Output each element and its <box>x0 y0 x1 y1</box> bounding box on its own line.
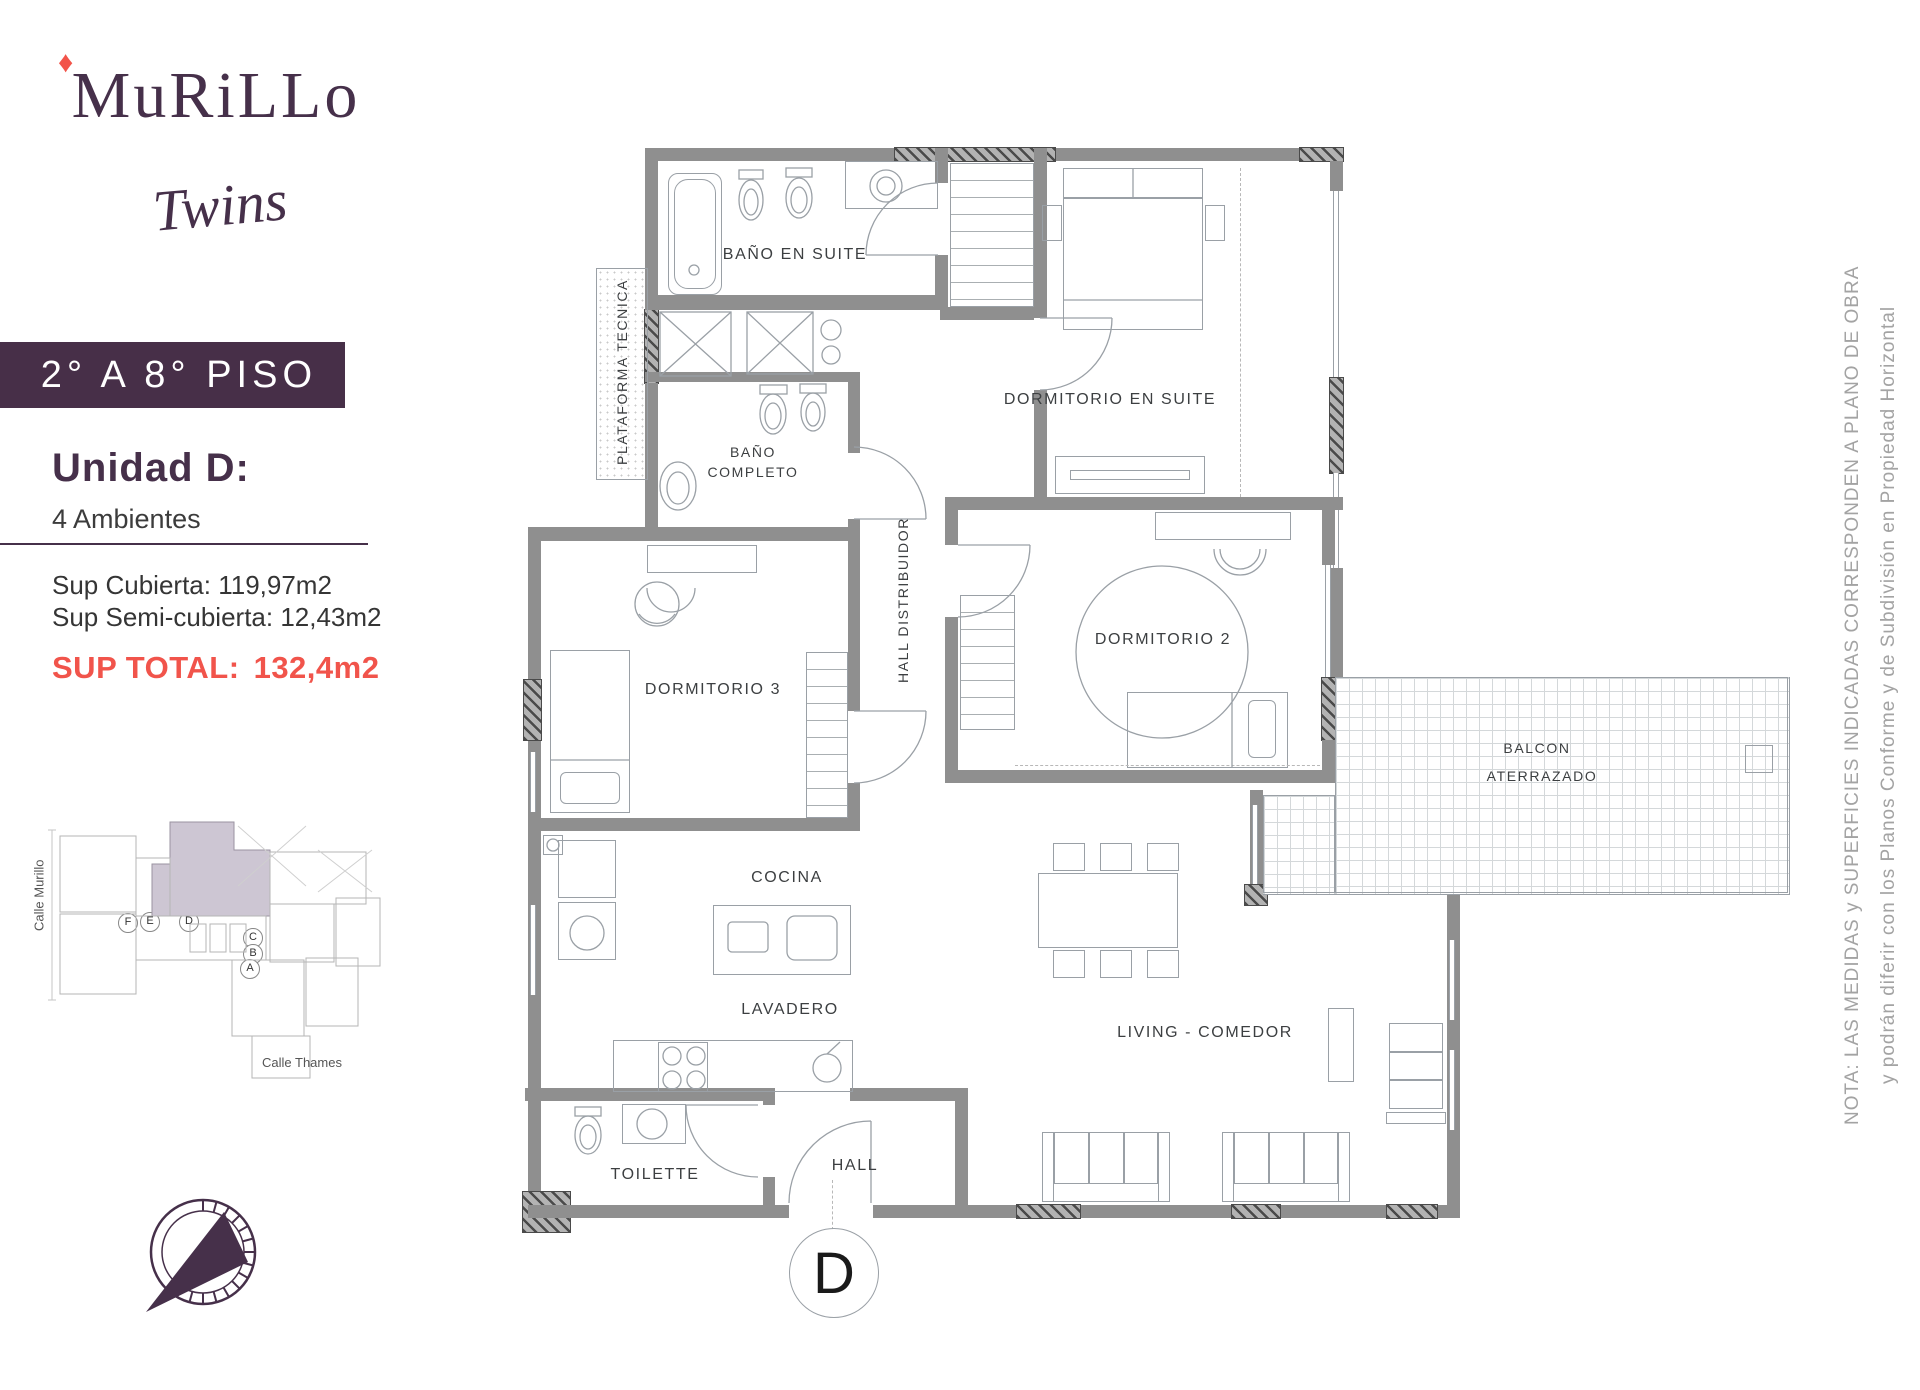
bookshelf <box>1389 1023 1443 1109</box>
dining-chair <box>1053 843 1085 871</box>
wall <box>1322 510 1335 565</box>
wall <box>1330 568 1343 688</box>
dining-chair <box>1100 843 1132 871</box>
unit-marker-e: E <box>140 912 160 932</box>
legal-note-line1: NOTA: LAS MEDIDAS y SUPERFICIES INDICADA… <box>1838 120 1868 1270</box>
site-plan-unit-d-highlight <box>152 822 270 916</box>
sofa-cushion <box>1124 1132 1158 1184</box>
dining-chair <box>1100 950 1132 978</box>
bookshelf-base <box>1386 1112 1446 1124</box>
site-plan <box>48 822 380 1078</box>
room-label-hall: HALL <box>832 1157 878 1175</box>
wall-hatched-pier <box>1017 1205 1080 1218</box>
sofa-cushion <box>1054 1132 1089 1184</box>
chair-icon <box>1220 549 1260 569</box>
dashed-axis <box>832 1180 833 1230</box>
compass-needle <box>146 1212 248 1312</box>
wall <box>848 372 860 453</box>
bathtub-inner <box>674 179 716 289</box>
desk <box>1155 512 1291 540</box>
room-label-living: LIVING - COMEDOR <box>1117 1024 1293 1042</box>
dining-table <box>1038 873 1178 948</box>
room-label-hall-distribuidor: HALL DISTRIBUIDOR <box>895 517 911 683</box>
closet <box>960 595 1015 730</box>
sofa-armrest <box>1042 1132 1054 1202</box>
wall <box>1330 161 1343 191</box>
window <box>1252 805 1258 887</box>
sink-icon <box>660 462 696 510</box>
brand-logo-subtitle: Twins <box>107 163 332 249</box>
compass-icon <box>146 1200 255 1312</box>
wall <box>945 497 958 545</box>
pillow <box>560 772 620 804</box>
wall <box>645 295 945 310</box>
balcony-terrace <box>1263 795 1335 895</box>
wall <box>848 527 860 711</box>
wall <box>940 307 1034 320</box>
washer <box>558 840 616 898</box>
sofa-armrest <box>1222 1132 1234 1202</box>
floor-range-banner: 2° A 8° PISO <box>0 342 345 408</box>
unit-title: Unidad D: <box>52 446 250 491</box>
bed-headboard <box>1063 168 1203 198</box>
sofa-armrest <box>1338 1132 1350 1202</box>
street-label-murillo: Calle Murillo <box>28 840 50 950</box>
window <box>1325 565 1331 678</box>
window <box>530 752 536 812</box>
wall <box>528 1205 789 1218</box>
chair-icon <box>647 588 695 612</box>
pillow <box>1248 700 1276 758</box>
washer <box>558 902 616 960</box>
wall <box>528 527 860 541</box>
window <box>1333 191 1339 378</box>
brand-logo: MuRiLLo <box>36 58 396 134</box>
desk <box>647 545 757 573</box>
floor-range-text: 2° A 8° PISO <box>41 354 317 397</box>
room-label-bano-completo-1: BAÑO <box>730 444 776 460</box>
sup-total-label: SUP TOTAL: <box>52 650 240 685</box>
wall <box>848 783 860 818</box>
wall <box>645 372 860 382</box>
sofa-cushion <box>1304 1132 1338 1184</box>
wall <box>528 818 860 831</box>
vanity-counter <box>845 161 938 209</box>
sink-icon <box>667 472 689 504</box>
toilet-icon <box>739 168 812 220</box>
unit-subtitle: 4 Ambientes <box>52 504 201 535</box>
unit-circle-letter: D <box>813 1240 855 1307</box>
room-label-cocina: COCINA <box>751 869 823 887</box>
room-label-dormitorio-en-suite: DORMITORIO EN SUITE <box>1004 391 1216 409</box>
dining-chair <box>1053 950 1085 978</box>
room-label-balcon-2: ATERRAZADO <box>1487 768 1598 784</box>
toilet-icon <box>760 384 826 434</box>
wall <box>528 540 541 1217</box>
nightstand <box>1042 205 1062 241</box>
gas-cooktop <box>658 1042 708 1092</box>
window <box>530 905 536 995</box>
wall-hatched-pier <box>895 148 1055 161</box>
room-label-balcon-1: BALCON <box>1503 740 1570 756</box>
unit-circle-marker: D <box>789 1228 879 1318</box>
wall <box>945 770 1335 783</box>
dining-chair <box>1147 950 1179 978</box>
wardrobe-inner <box>1070 470 1190 480</box>
unit-marker-a: A <box>240 959 260 979</box>
wall-hatched-pier <box>1232 1205 1280 1218</box>
unit-marker-f: F <box>118 913 138 933</box>
divider-line <box>0 543 368 545</box>
floorplan-page: ♦ MuRiLLo Twins 2° A 8° PISO Unidad D: 4… <box>0 0 1920 1390</box>
unit-marker-d: D <box>179 912 199 932</box>
sofa-armrest <box>1158 1132 1170 1202</box>
double-bed <box>1063 198 1203 330</box>
chair-icon <box>1214 549 1266 575</box>
dashed-boundary <box>1015 765 1320 766</box>
nightstand <box>1205 205 1225 241</box>
room-label-bano-completo-2: COMPLETO <box>707 464 798 480</box>
side-table-arc <box>639 614 675 623</box>
bookshelf-shelf <box>1389 1079 1443 1081</box>
closet <box>806 652 848 818</box>
wall-hatched-pier <box>1387 1205 1437 1218</box>
room-label-dormitorio-2: DORMITORIO 2 <box>1095 631 1231 649</box>
sink-counter <box>622 1104 686 1144</box>
balcony-ac-unit <box>1745 745 1773 773</box>
bookshelf-shelf <box>1389 1051 1443 1053</box>
room-label-plataforma: PLATAFORMA TECNICA <box>614 279 630 465</box>
wall <box>873 1205 1458 1218</box>
sup-total-value: 132,4m2 <box>254 650 380 685</box>
room-label-bano-en-suite: BAÑO EN SUITE <box>723 246 867 264</box>
sup-semicubierta: Sup Semi-cubierta: 12,43m2 <box>52 602 382 633</box>
street-label-thames: Calle Thames <box>262 1055 342 1070</box>
balcony-terrace <box>1335 677 1790 895</box>
kitchen-island <box>713 905 851 975</box>
tv-unit <box>1328 1008 1354 1082</box>
sofa-cushion <box>1089 1132 1124 1184</box>
dining-chair <box>1147 843 1179 871</box>
wall <box>848 519 860 527</box>
window <box>1449 1050 1455 1130</box>
room-label-toilette: TOILETTE <box>611 1166 700 1184</box>
wall <box>955 1101 968 1205</box>
wall-hatched-pier <box>524 680 541 740</box>
wall-hatched-pier <box>1322 678 1335 740</box>
side-table <box>635 582 679 626</box>
wall <box>945 497 1343 510</box>
wall <box>1322 740 1335 783</box>
kitchen-counter <box>613 1040 853 1092</box>
wall-hatched-pier <box>1330 378 1343 473</box>
room-label-dormitorio-3: DORMITORIO 3 <box>645 681 781 699</box>
wall-hatched-pier <box>1300 148 1343 161</box>
laundry-sink <box>543 835 563 855</box>
shower <box>660 312 841 376</box>
sofa-cushion <box>1234 1132 1269 1184</box>
wall <box>935 255 948 307</box>
wall <box>945 617 958 780</box>
toilet-icon <box>575 1107 601 1154</box>
sofa-cushion <box>1269 1132 1304 1184</box>
legal-note-line2: y podrán diferir con los Planos Conforme… <box>1874 120 1904 1270</box>
stairs <box>950 163 1034 307</box>
dashed-boundary <box>1240 168 1241 497</box>
window <box>1449 940 1455 1020</box>
wall <box>850 1088 968 1101</box>
sup-cubierta: Sup Cubierta: 119,97m2 <box>52 570 332 601</box>
room-label-lavadero: LAVADERO <box>741 1001 839 1019</box>
sup-total: SUP TOTAL:132,4m2 <box>52 650 379 686</box>
